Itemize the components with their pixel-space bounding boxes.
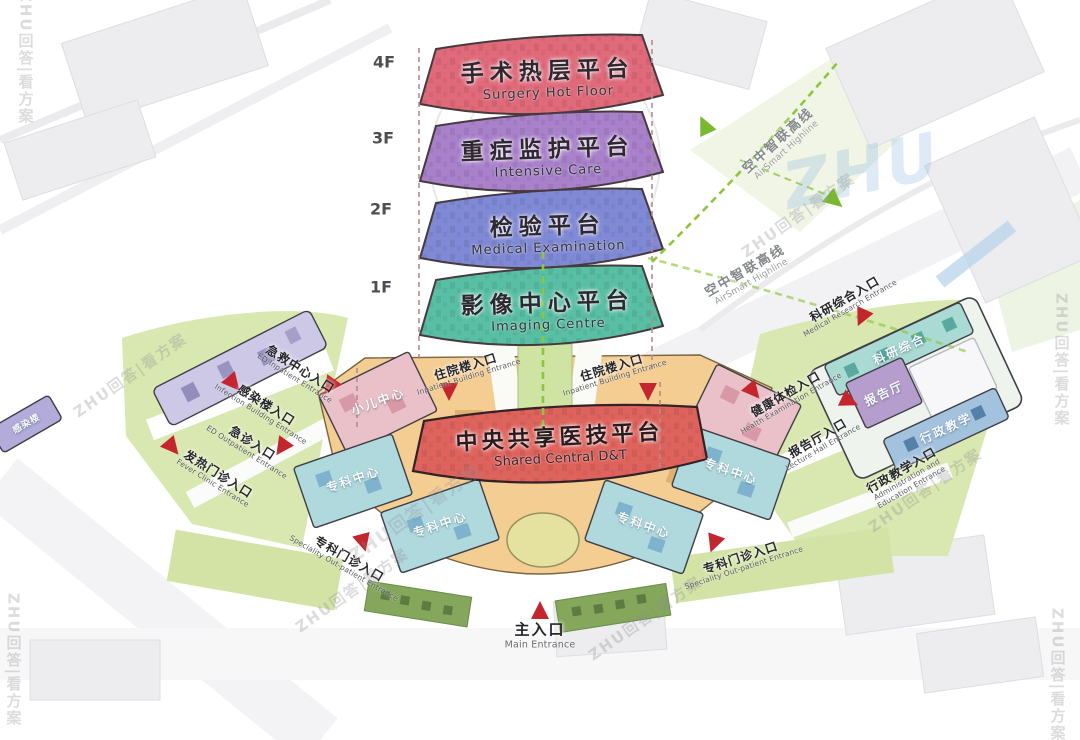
tree-strip-left xyxy=(364,581,471,627)
masterplan-diagram: 4F 3F 2F 1F 手术热层平台 Surgery Hot Floor 重症监… xyxy=(0,0,1080,740)
amphitheatre xyxy=(507,513,579,567)
floor-plates xyxy=(420,35,663,346)
site-plan-graphics xyxy=(0,0,1080,740)
building-infection xyxy=(0,395,62,453)
